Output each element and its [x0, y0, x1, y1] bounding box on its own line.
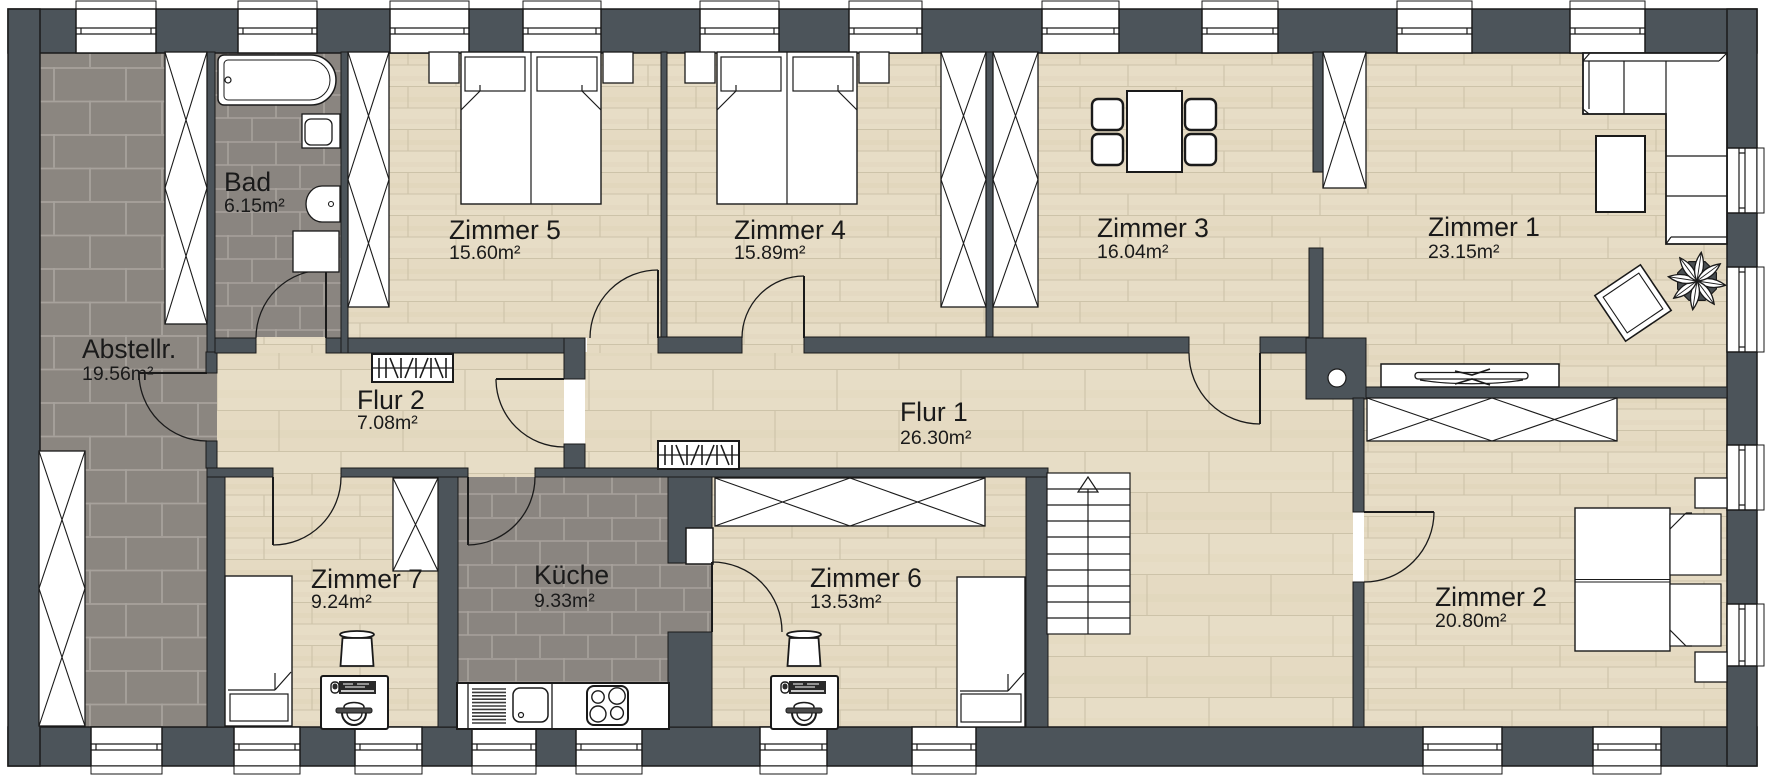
svg-text:Bad: Bad [224, 167, 271, 197]
svg-text:Zimmer 7: Zimmer 7 [311, 564, 423, 594]
svg-text:Zimmer 4: Zimmer 4 [734, 215, 846, 245]
svg-text:Zimmer 3: Zimmer 3 [1097, 213, 1209, 243]
svg-text:26.30m²: 26.30m² [900, 427, 972, 449]
svg-text:19.56m²: 19.56m² [82, 363, 154, 385]
svg-text:Zimmer 6: Zimmer 6 [810, 563, 922, 593]
svg-text:Küche: Küche [534, 560, 609, 590]
svg-text:7.08m²: 7.08m² [357, 412, 418, 434]
svg-text:13.53m²: 13.53m² [810, 591, 882, 613]
svg-text:15.89m²: 15.89m² [734, 242, 806, 264]
svg-text:20.80m²: 20.80m² [1435, 610, 1507, 632]
svg-text:9.33m²: 9.33m² [534, 590, 595, 612]
svg-text:6.15m²: 6.15m² [224, 195, 285, 217]
svg-text:23.15m²: 23.15m² [1428, 241, 1500, 263]
svg-text:Zimmer 2: Zimmer 2 [1435, 582, 1547, 612]
svg-text:16.04m²: 16.04m² [1097, 241, 1169, 263]
svg-text:15.60m²: 15.60m² [449, 242, 521, 264]
svg-text:Zimmer 1: Zimmer 1 [1428, 212, 1540, 242]
svg-text:Abstellr.: Abstellr. [82, 334, 176, 364]
svg-text:Flur 1: Flur 1 [900, 397, 968, 427]
svg-text:Flur 2: Flur 2 [357, 385, 425, 415]
svg-text:9.24m²: 9.24m² [311, 591, 372, 613]
svg-text:Zimmer 5: Zimmer 5 [449, 215, 561, 245]
